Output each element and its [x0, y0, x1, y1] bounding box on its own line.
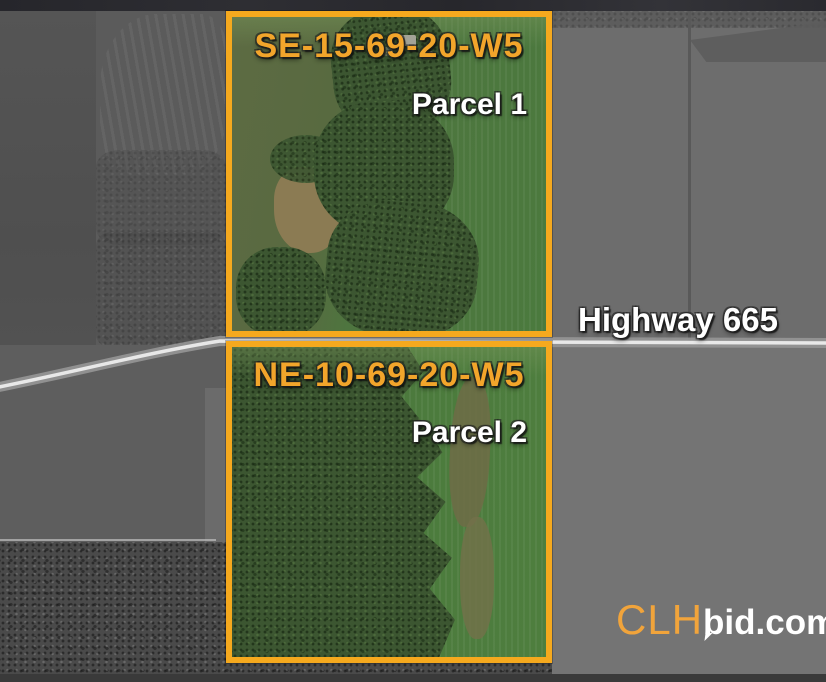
logo-bid-label: bid.com: [703, 603, 826, 642]
logo-clh-text: CLH: [616, 596, 703, 644]
aerial-map: SE-15-69-20-W5 Parcel 1 NE-10-69-20-W5 P…: [0, 0, 826, 682]
logo-bid-text: bid.com: [703, 603, 826, 643]
forest-patch: [236, 247, 326, 331]
bare-soil-patch: [460, 517, 494, 639]
parcel-1-id-label: SE-15-69-20-W5: [226, 27, 552, 66]
parcel-1-name-label: Parcel 1: [226, 88, 527, 122]
parcel-2-name-label: Parcel 2: [226, 416, 527, 450]
highway-label: Highway 665: [578, 301, 778, 339]
logo-pointer-icon: [704, 633, 712, 641]
parcel-2-id-label: NE-10-69-20-W5: [226, 356, 552, 395]
clhbid-logo: CLH bid.com: [616, 596, 826, 644]
